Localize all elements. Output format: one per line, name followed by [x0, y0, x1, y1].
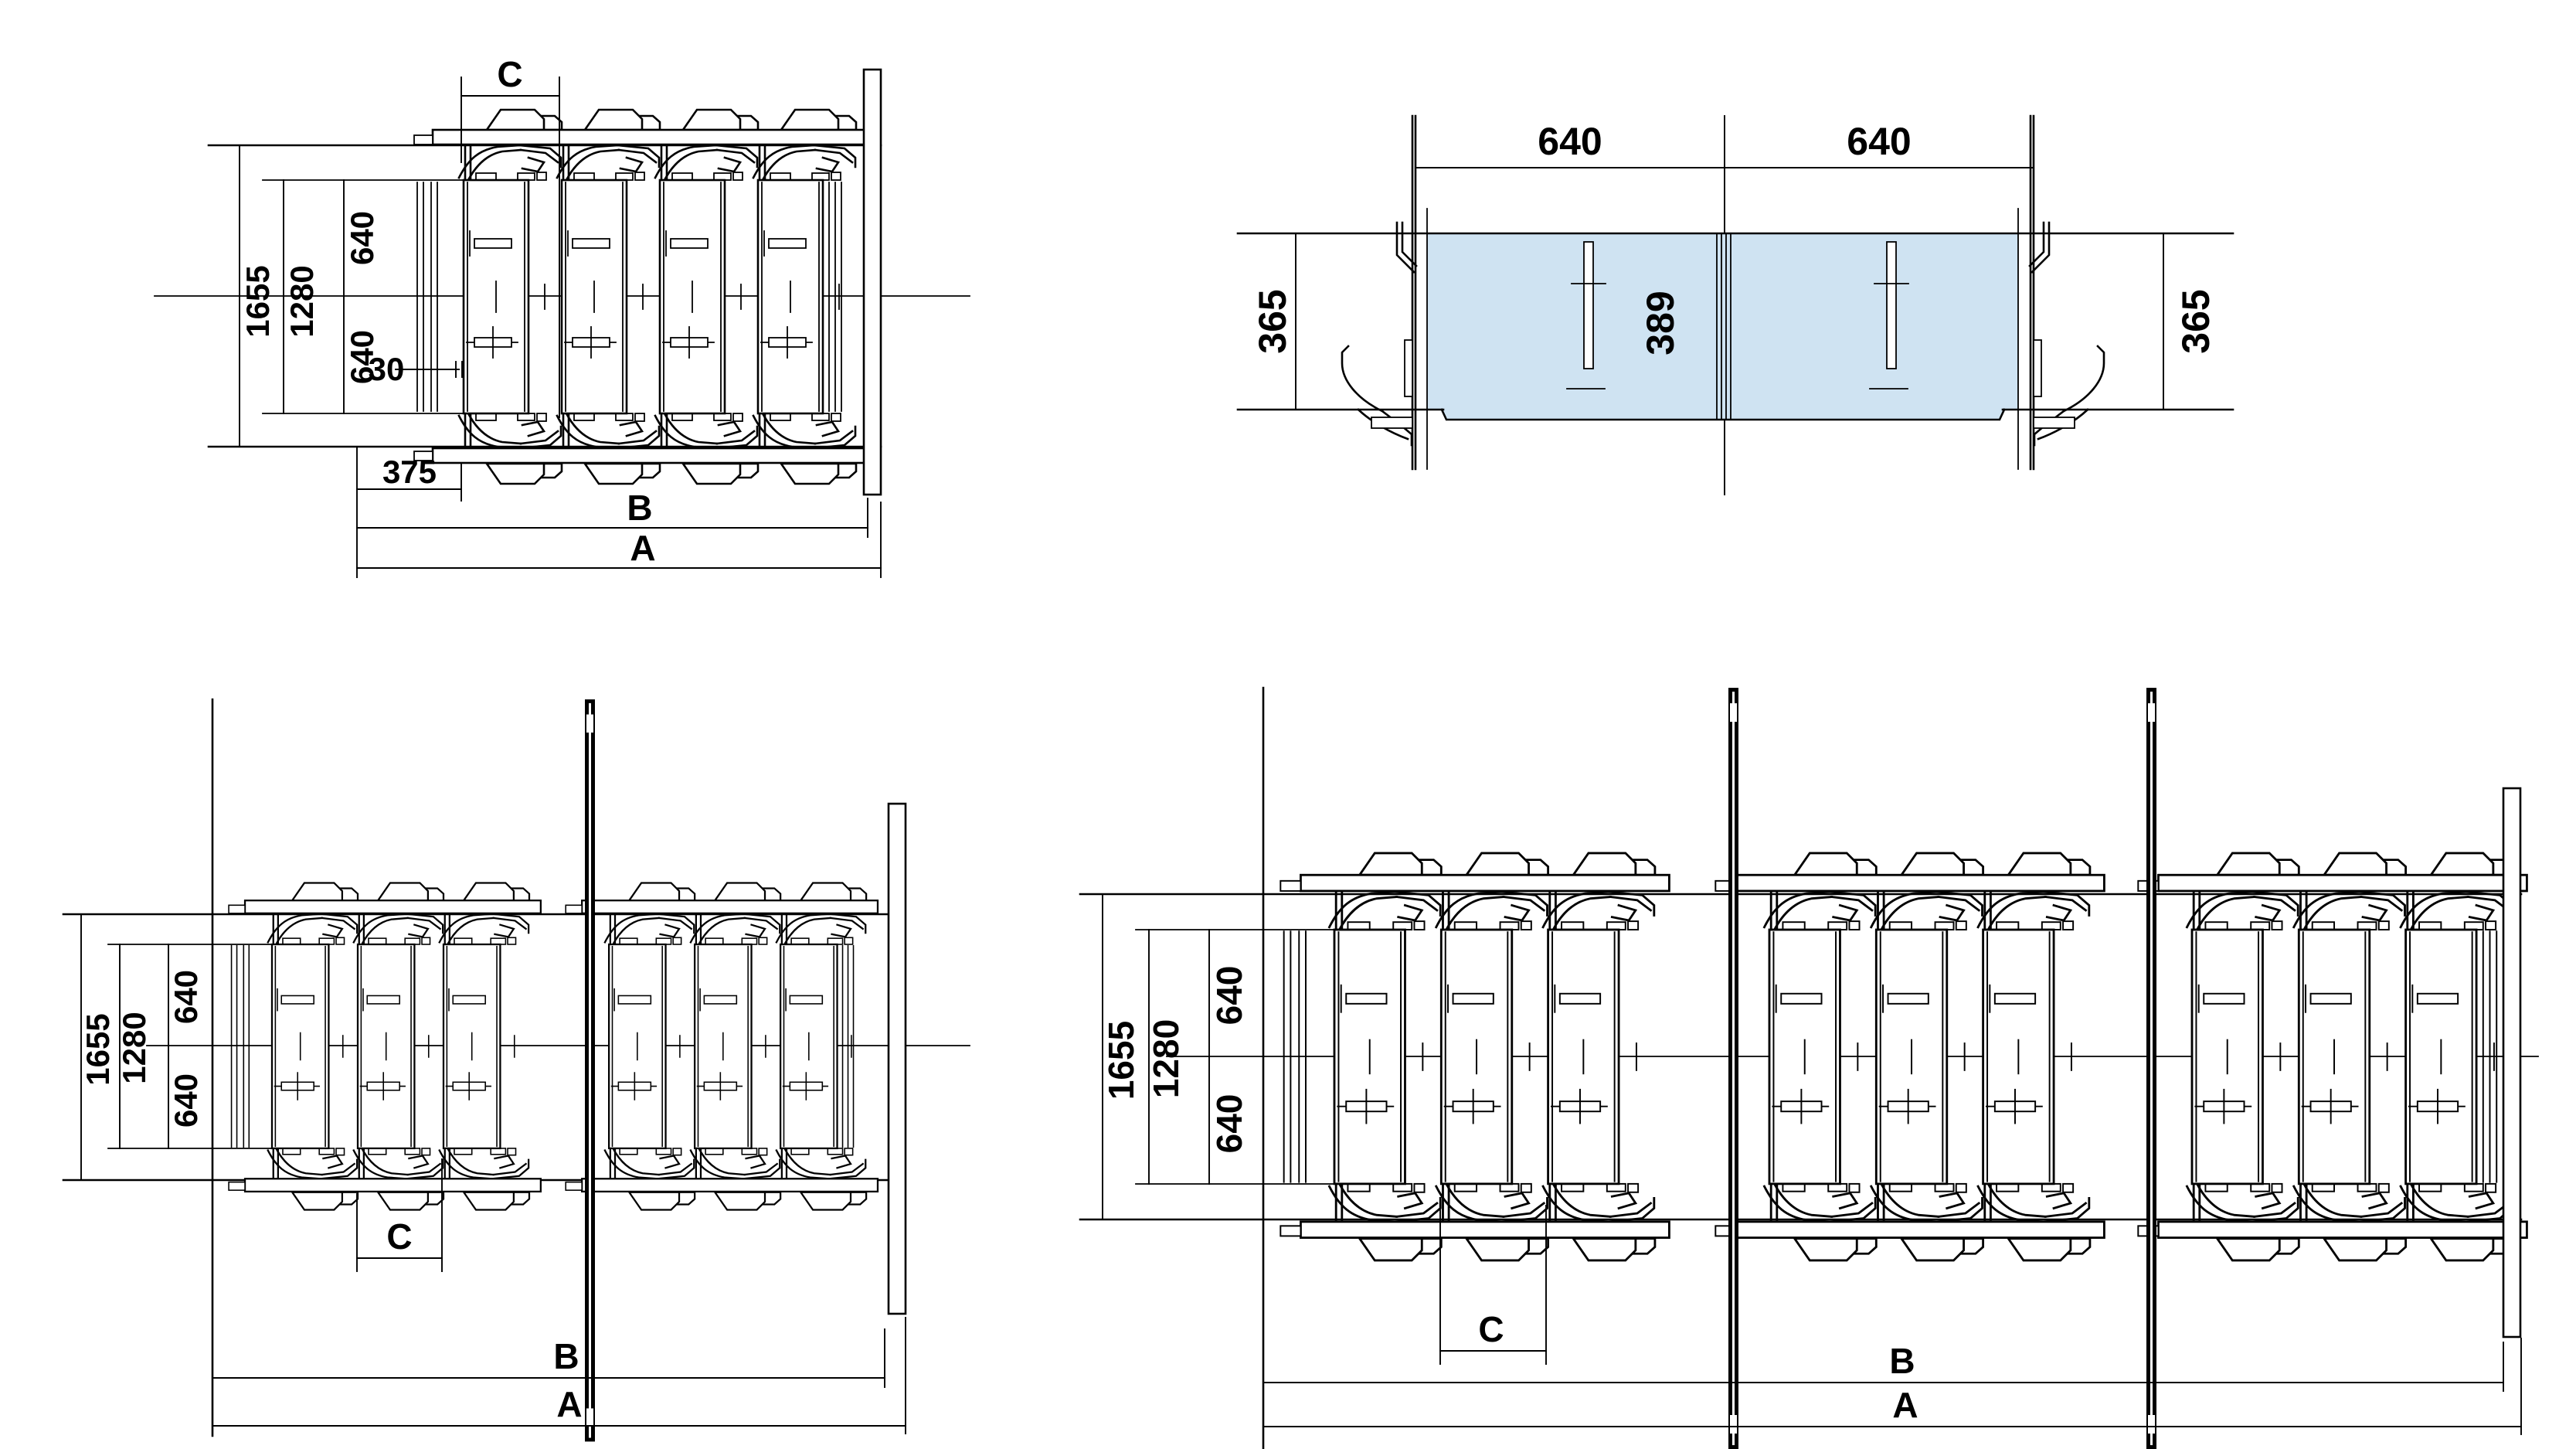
dim-label-1280: 1280 [284, 265, 320, 337]
dim-label-640-top: 640 [1209, 966, 1249, 1026]
dimension-1655: 1655 [80, 914, 116, 1180]
dim-label-1655: 1655 [80, 1013, 116, 1085]
platform-group-3 [2138, 853, 2527, 1260]
dim-label-c: C [386, 1216, 412, 1257]
dim-label-365-right: 365 [2174, 289, 2217, 353]
dim-label-640-left: 640 [1538, 120, 1602, 163]
end-column [2503, 788, 2520, 1337]
dim-label-c: C [497, 54, 522, 94]
dimension-365-right: 365 [2163, 233, 2217, 410]
dimension-1280: 1280 [1146, 930, 1186, 1184]
dim-label-1280: 1280 [1146, 1019, 1186, 1098]
dim-label-b: B [553, 1336, 579, 1376]
dimension-1280: 1280 [284, 180, 320, 413]
platform-surface [1427, 233, 2018, 420]
dim-label-c: C [1478, 1309, 1504, 1349]
bays [459, 110, 856, 484]
dimension-1655: 1655 [240, 145, 276, 447]
dimension-1280: 1280 [116, 944, 152, 1148]
dimension-640-pair: 640 640 [168, 944, 204, 1148]
dim-label-a: A [1892, 1385, 1918, 1425]
dimension-b: B [1263, 1341, 2503, 1391]
wheel-chock-right [2030, 223, 2104, 445]
dim-label-30: 30 [369, 351, 405, 387]
dim-label-1655: 1655 [1101, 1021, 1141, 1100]
dim-label-640-top: 640 [344, 211, 380, 265]
drawing-top-right-section: 640 640 365 389 365 [1238, 116, 2233, 495]
dim-label-389: 389 [1639, 291, 1682, 355]
dim-label-b: B [627, 488, 652, 528]
dim-label-a: A [630, 528, 655, 568]
dimension-389: 389 [1639, 291, 1682, 355]
platform-group-2 [1715, 853, 2104, 1260]
dim-label-640-top: 640 [168, 970, 204, 1024]
drawing-page: C 1655 1280 640 640 30 375 [0, 0, 2576, 1449]
drawing-bottom-left-plan: 1655 1280 640 640 C B A [63, 699, 970, 1441]
end-column [889, 804, 906, 1314]
dimension-365-left: 365 [1251, 233, 1296, 410]
dim-label-640-right: 640 [1847, 120, 1911, 163]
dim-label-375: 375 [382, 454, 437, 490]
drawing-top-left-plan: C 1655 1280 640 640 30 375 [155, 54, 970, 577]
dim-label-1280: 1280 [116, 1012, 152, 1083]
drawing-bottom-right-plan: 1655 1280 640 640 C B A [1080, 688, 2538, 1449]
platform-row [229, 883, 878, 1209]
platform-group-1 [1280, 853, 1669, 1260]
wheel-chock-left [1342, 223, 1416, 445]
divider-1 [1728, 688, 1738, 1449]
dim-label-1655: 1655 [240, 265, 276, 337]
dimension-30: 30 [369, 351, 462, 387]
technical-drawing-canvas: C 1655 1280 640 640 30 375 [0, 0, 2576, 1449]
dimension-1655: 1655 [1101, 894, 1141, 1219]
center-divider [585, 699, 595, 1441]
divider-2 [2146, 688, 2156, 1449]
dim-label-a: A [556, 1384, 582, 1424]
dim-label-b: B [1889, 1341, 1915, 1381]
dimension-375: 375 [357, 448, 461, 577]
dim-label-365-left: 365 [1251, 289, 1294, 353]
dim-label-640-bottom: 640 [1209, 1094, 1249, 1154]
end-column [864, 70, 881, 495]
dimension-a: A [357, 502, 881, 577]
dimension-b: B [357, 488, 868, 537]
dim-label-640-bottom: 640 [168, 1073, 204, 1128]
dimension-b: B [212, 1329, 885, 1387]
platform-row [417, 110, 856, 484]
